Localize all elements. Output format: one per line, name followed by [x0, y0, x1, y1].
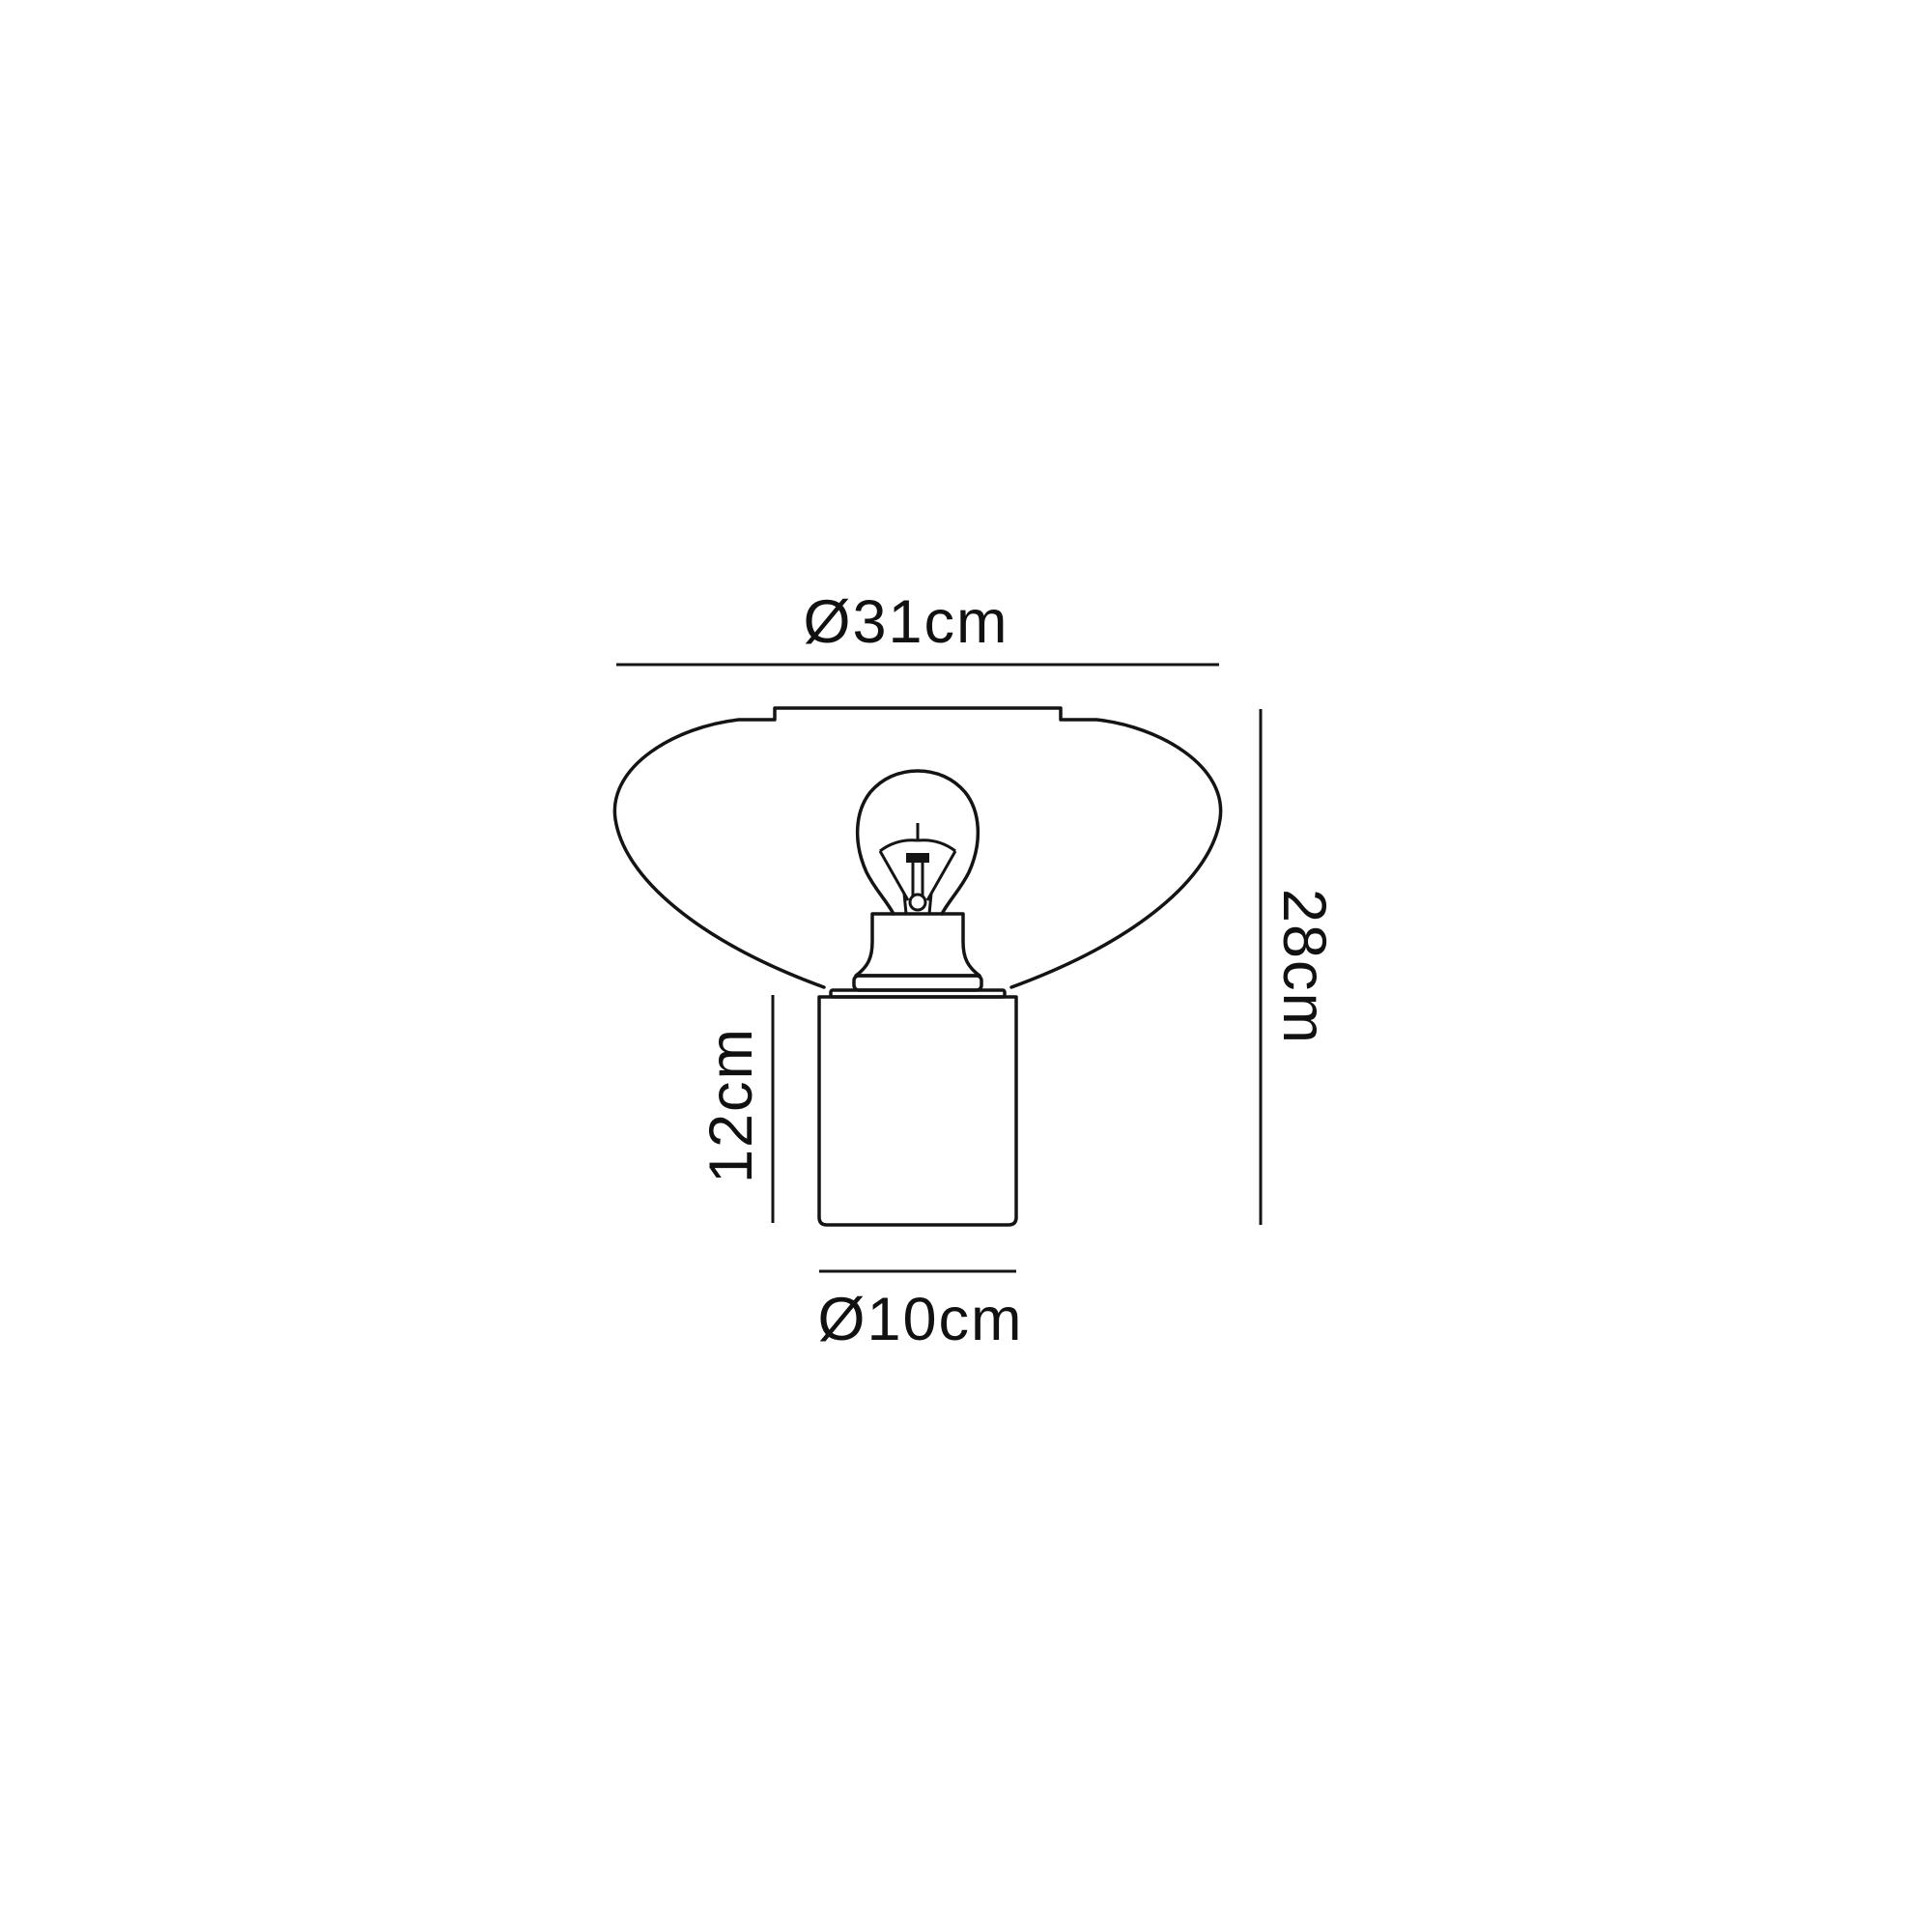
socket-cup — [856, 914, 980, 976]
filament-wings — [880, 840, 955, 851]
socket-flange-plate — [854, 976, 981, 990]
dim-label-overall-height: 28cm — [1269, 889, 1339, 1045]
lamp-base — [819, 997, 1016, 1225]
light-bulb-glass — [858, 771, 979, 914]
lamp-shade-outline — [614, 708, 1220, 987]
lamp-socket — [831, 914, 1005, 997]
filament-loop — [910, 895, 925, 910]
lamp-line-drawing — [0, 0, 1932, 1932]
dim-label-base-height: 12cm — [696, 1027, 766, 1183]
filament-stem — [913, 863, 923, 896]
dimension-diagram: Ø31cm 28cm 12cm Ø10cm — [0, 0, 1932, 1932]
bulb-filament — [880, 823, 955, 910]
filament-bead — [906, 853, 929, 863]
dim-label-base-diameter: Ø10cm — [817, 1285, 1023, 1354]
dim-label-shade-diameter: Ø31cm — [803, 587, 1009, 657]
